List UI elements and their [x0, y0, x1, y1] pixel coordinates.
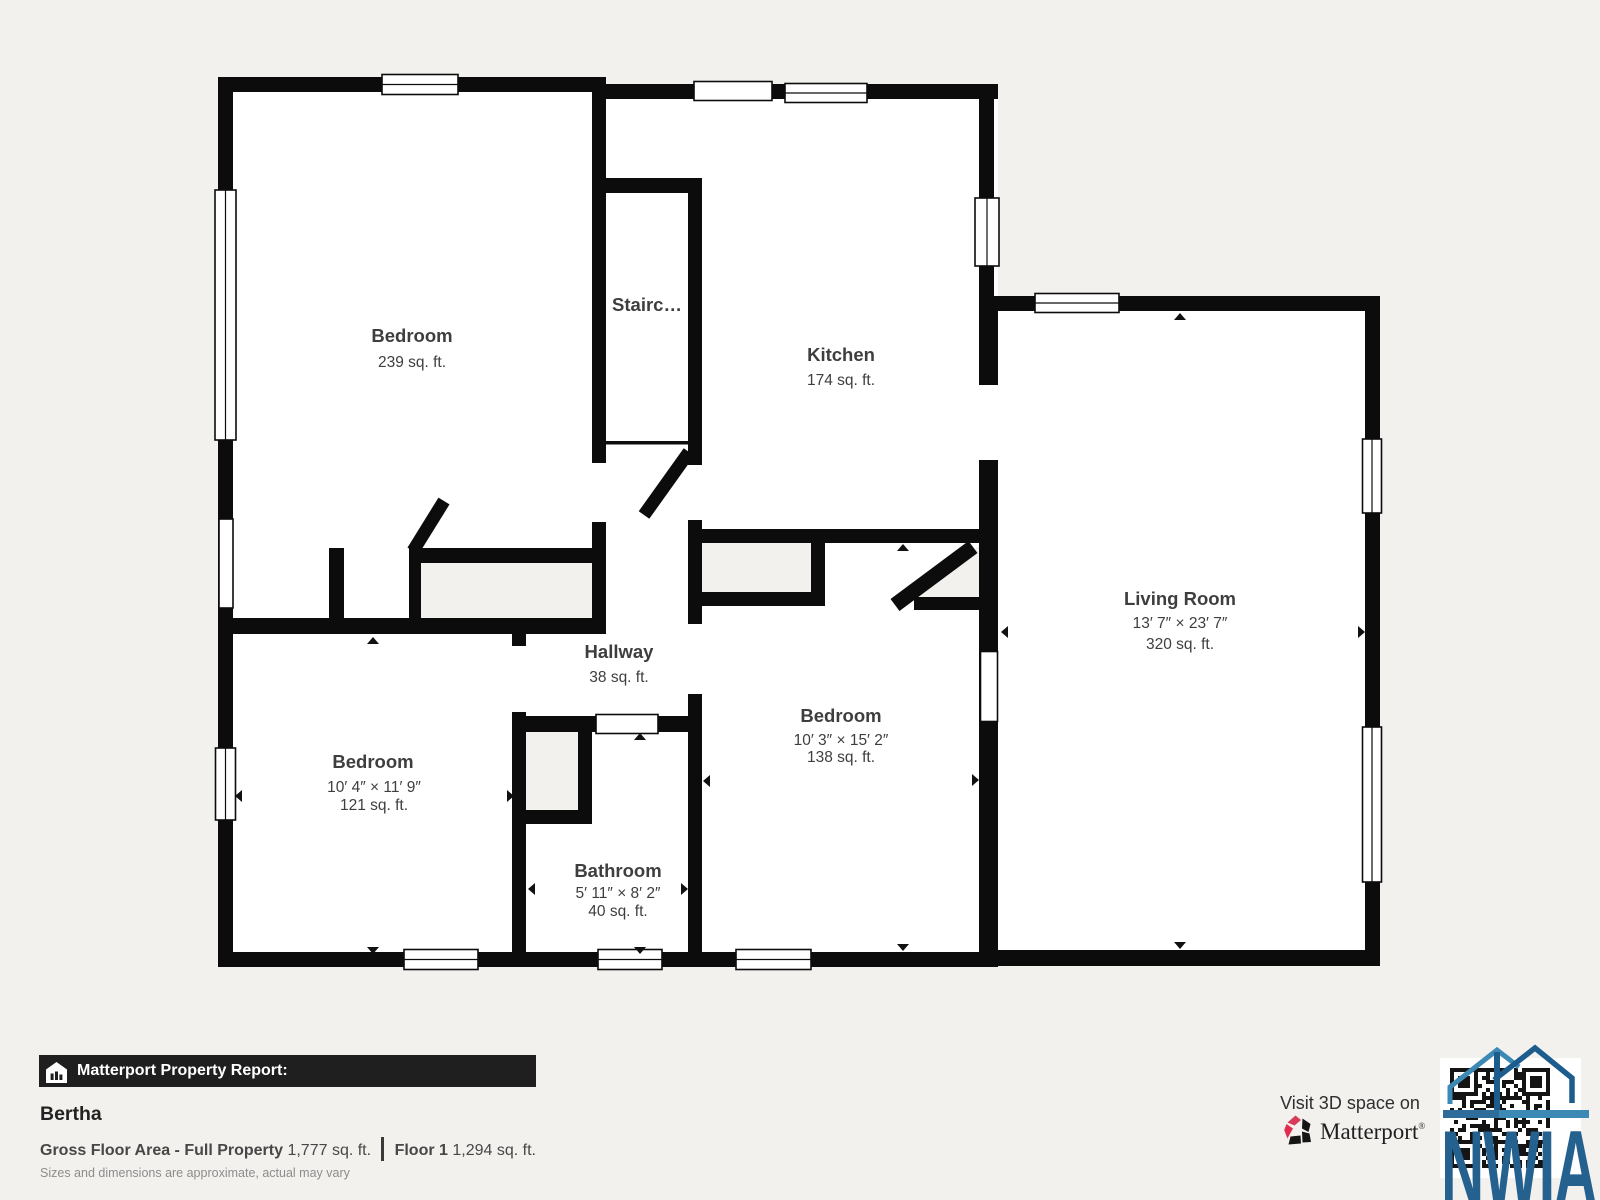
svg-text:NWIA: NWIA [1441, 1110, 1596, 1200]
svg-text:5′ 11″ × 8′ 2″: 5′ 11″ × 8′ 2″ [575, 885, 661, 902]
svg-text:Living Room: Living Room [1124, 588, 1236, 609]
svg-text:10′ 4″ × 11′ 9″: 10′ 4″ × 11′ 9″ [327, 779, 421, 796]
svg-text:13′ 7″ × 23′ 7″: 13′ 7″ × 23′ 7″ [1133, 615, 1228, 632]
svg-text:Bedroom: Bedroom [371, 325, 452, 346]
svg-text:Bedroom: Bedroom [800, 705, 881, 726]
svg-text:10′ 3″ × 15′ 2″: 10′ 3″ × 15′ 2″ [794, 732, 889, 749]
svg-text:239 sq. ft.: 239 sq. ft. [378, 354, 446, 371]
svg-text:174 sq. ft.: 174 sq. ft. [807, 372, 875, 389]
svg-text:138 sq. ft.: 138 sq. ft. [807, 749, 875, 766]
svg-text:320 sq. ft.: 320 sq. ft. [1146, 636, 1214, 653]
svg-text:Kitchen: Kitchen [807, 344, 875, 365]
svg-text:121 sq. ft.: 121 sq. ft. [340, 797, 408, 814]
svg-text:40 sq. ft.: 40 sq. ft. [588, 903, 647, 920]
svg-text:Bedroom: Bedroom [332, 751, 413, 772]
svg-text:Hallway: Hallway [585, 641, 655, 662]
svg-text:Bathroom: Bathroom [574, 860, 661, 881]
svg-text:Stairc…: Stairc… [612, 294, 682, 315]
svg-text:38 sq. ft.: 38 sq. ft. [589, 669, 648, 686]
